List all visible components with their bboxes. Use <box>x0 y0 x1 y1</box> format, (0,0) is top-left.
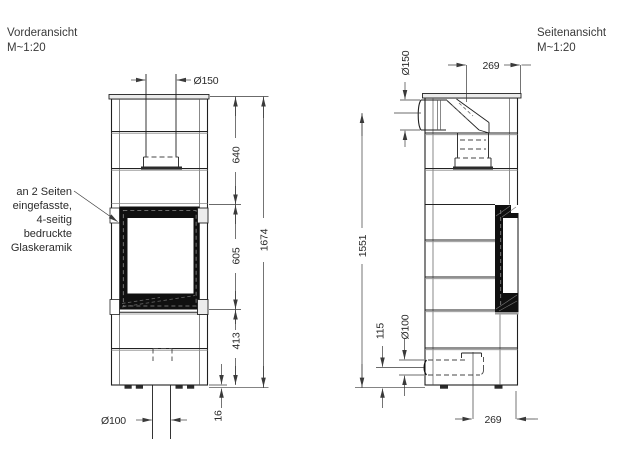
front-foot <box>125 386 132 389</box>
front-flue-stub <box>141 74 182 170</box>
dim-front-1674: 1674 <box>259 228 271 251</box>
side-view-scale: M~1:20 <box>537 42 576 54</box>
front-foot <box>136 386 143 389</box>
dim-side-flue-offset: 269 <box>483 60 500 72</box>
dim-front-605: 605 <box>231 247 243 264</box>
front-top-cap <box>109 95 209 100</box>
side-door-glass <box>503 218 518 293</box>
door-tab-top <box>110 208 120 223</box>
side-door-notch <box>511 205 519 213</box>
dim-front-flue-diameter: Ø150 <box>194 75 219 87</box>
annotation-line-1: an 2 Seiten <box>16 186 72 198</box>
dim-side-air-height: 115 <box>375 323 387 339</box>
door-hinge-top <box>198 208 209 223</box>
side-foot <box>440 386 448 389</box>
dim-front-640: 640 <box>231 146 243 163</box>
door-hinge-bottom <box>198 300 209 315</box>
side-view-title: Seitenansicht <box>537 27 607 39</box>
dim-side-air-offset: 269 <box>485 414 502 426</box>
side-foot <box>495 386 503 389</box>
side-glass-door <box>495 205 519 315</box>
dim-front-413: 413 <box>231 332 243 349</box>
annotation-line-3: 4-seitig <box>37 214 72 226</box>
dim-front-air-diameter: Ø100 <box>101 415 126 427</box>
front-flue-collar <box>141 167 182 170</box>
front-annotation: an 2 Seiten eingefasste, 4-seitig bedruc… <box>11 186 118 254</box>
front-view: Vorderansicht M~1:20 <box>7 27 271 439</box>
front-glass-door <box>110 207 208 315</box>
dim-front-16: 16 <box>213 410 225 422</box>
flue-pipe-end <box>418 100 421 130</box>
front-view-scale: M~1:20 <box>7 42 46 54</box>
door-glass <box>128 218 194 294</box>
front-air-pipe <box>153 349 173 440</box>
dim-side-flue-diameter: Ø150 <box>400 50 412 75</box>
drawing-sheet: Vorderansicht M~1:20 <box>0 0 624 460</box>
front-foot <box>176 386 183 389</box>
side-door-sill <box>495 312 519 315</box>
door-tab-bottom <box>110 300 120 315</box>
technical-drawing: Vorderansicht M~1:20 <box>0 0 624 460</box>
dim-side-air-diameter: Ø100 <box>400 314 412 339</box>
side-top-cap <box>423 94 522 99</box>
side-view: Seitenansicht M~1:20 <box>355 27 607 426</box>
annotation-line-5: Glaskeramik <box>11 242 73 254</box>
front-foot <box>187 386 194 389</box>
side-flue <box>418 99 493 170</box>
front-view-title: Vorderansicht <box>7 27 78 39</box>
dim-side-1551: 1551 <box>357 234 369 257</box>
side-flue-collar <box>453 167 493 170</box>
annotation-line-2: eingefasste, <box>13 200 72 212</box>
annotation-line-4: bedruckte <box>24 228 72 240</box>
